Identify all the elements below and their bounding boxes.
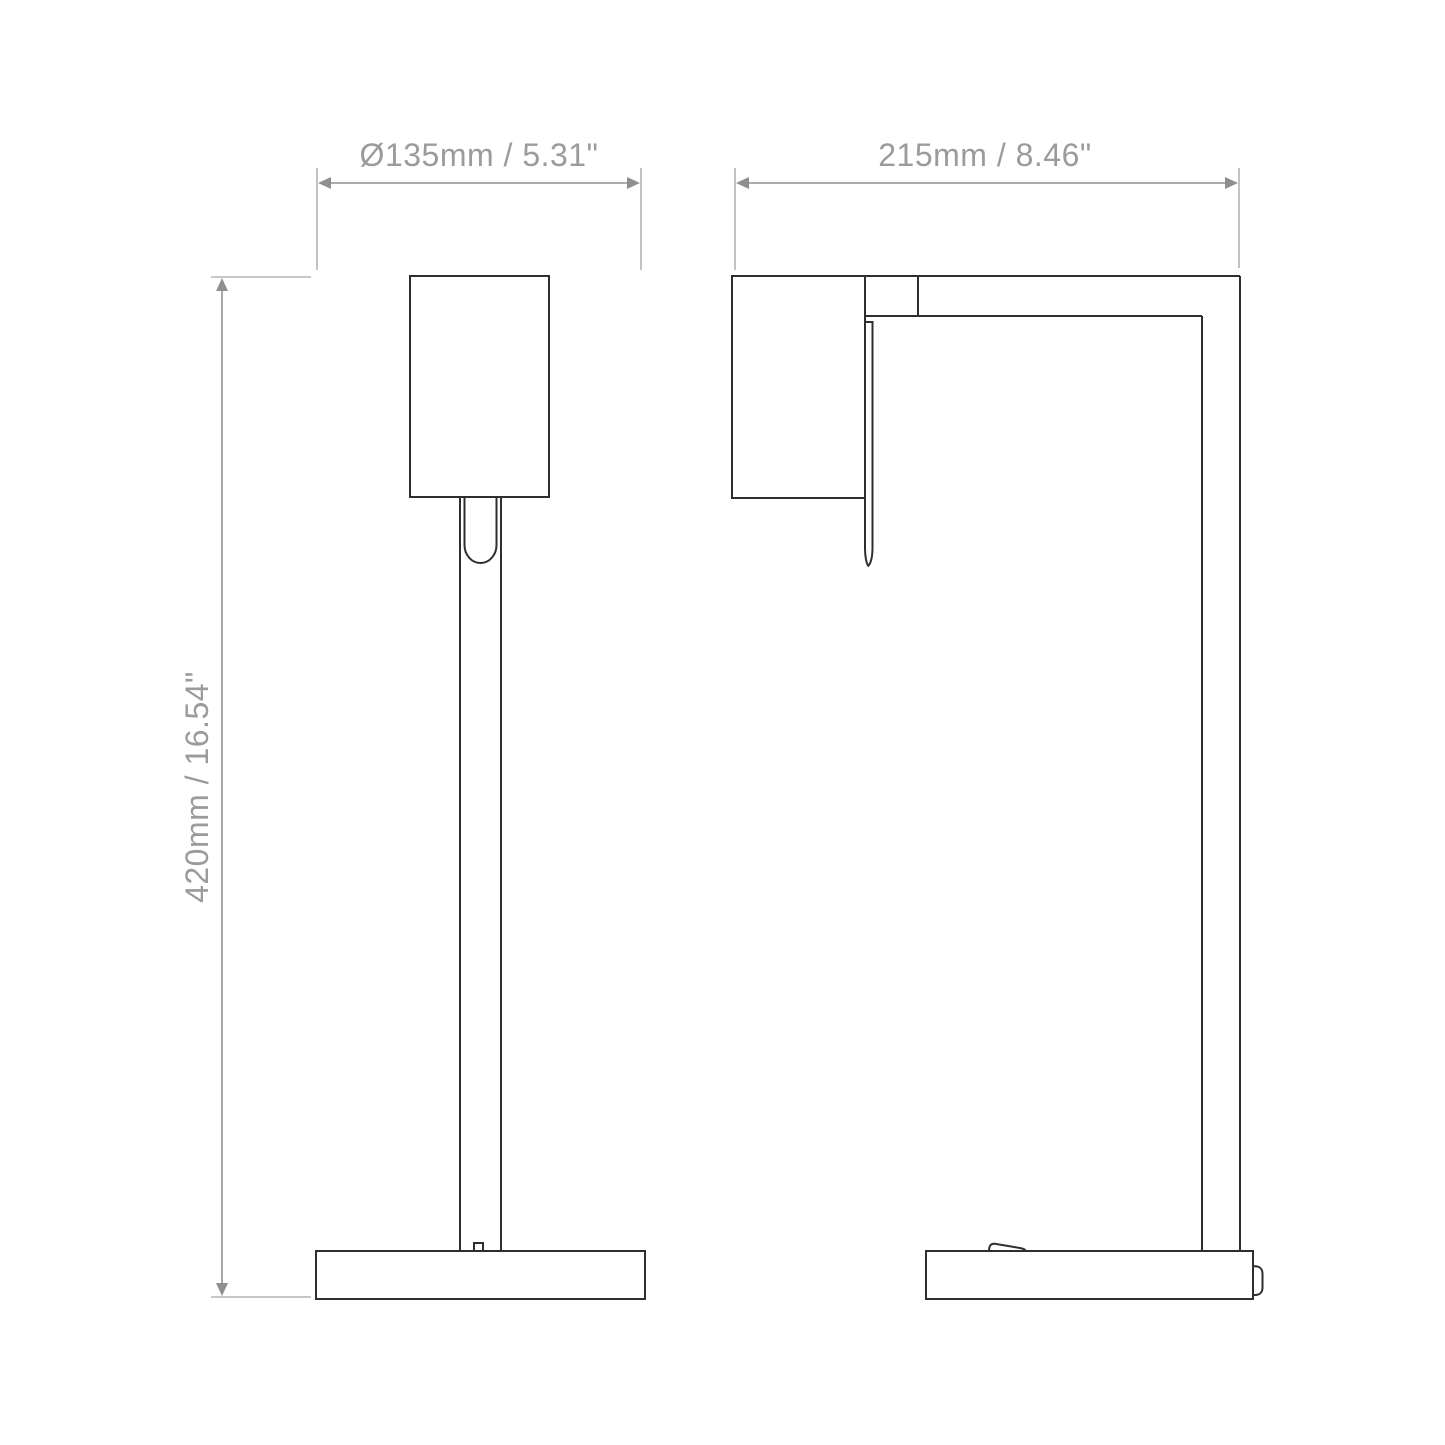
side-shade-cylinder — [732, 276, 865, 498]
arrowhead-left-icon — [736, 177, 749, 189]
side-base — [926, 1251, 1253, 1299]
dimension-depth: 215mm / 8.46" — [735, 137, 1239, 270]
front-yoke-bracket — [465, 497, 497, 563]
front-base — [316, 1251, 645, 1299]
height-extension-lines — [211, 277, 311, 1297]
front-shade-cylinder — [410, 276, 549, 497]
depth-label: 215mm / 8.46" — [878, 137, 1092, 173]
side-base-cable-outlet — [1253, 1266, 1263, 1295]
arrowhead-right-icon — [1225, 177, 1238, 189]
height-label: 420mm / 16.54" — [179, 671, 215, 903]
arrowhead-down-icon — [216, 1283, 228, 1296]
side-base-switch — [989, 1244, 1026, 1251]
front-stem — [460, 497, 501, 1251]
front-view — [316, 276, 645, 1299]
side-yoke-strap — [865, 322, 873, 566]
dimension-base-diameter: Ø135mm / 5.31" — [317, 137, 641, 270]
arrowhead-left-icon — [318, 177, 331, 189]
base-diameter-label: Ø135mm / 5.31" — [360, 137, 599, 173]
arrowhead-up-icon — [216, 278, 228, 291]
lamp-dimension-drawing: Ø135mm / 5.31" 215mm / 8.46" 420mm / 16.… — [0, 0, 1445, 1445]
dimension-height: 420mm / 16.54" — [179, 277, 311, 1297]
arrowhead-right-icon — [627, 177, 640, 189]
side-view — [732, 276, 1263, 1299]
front-stem-fixing-notch — [474, 1243, 483, 1251]
